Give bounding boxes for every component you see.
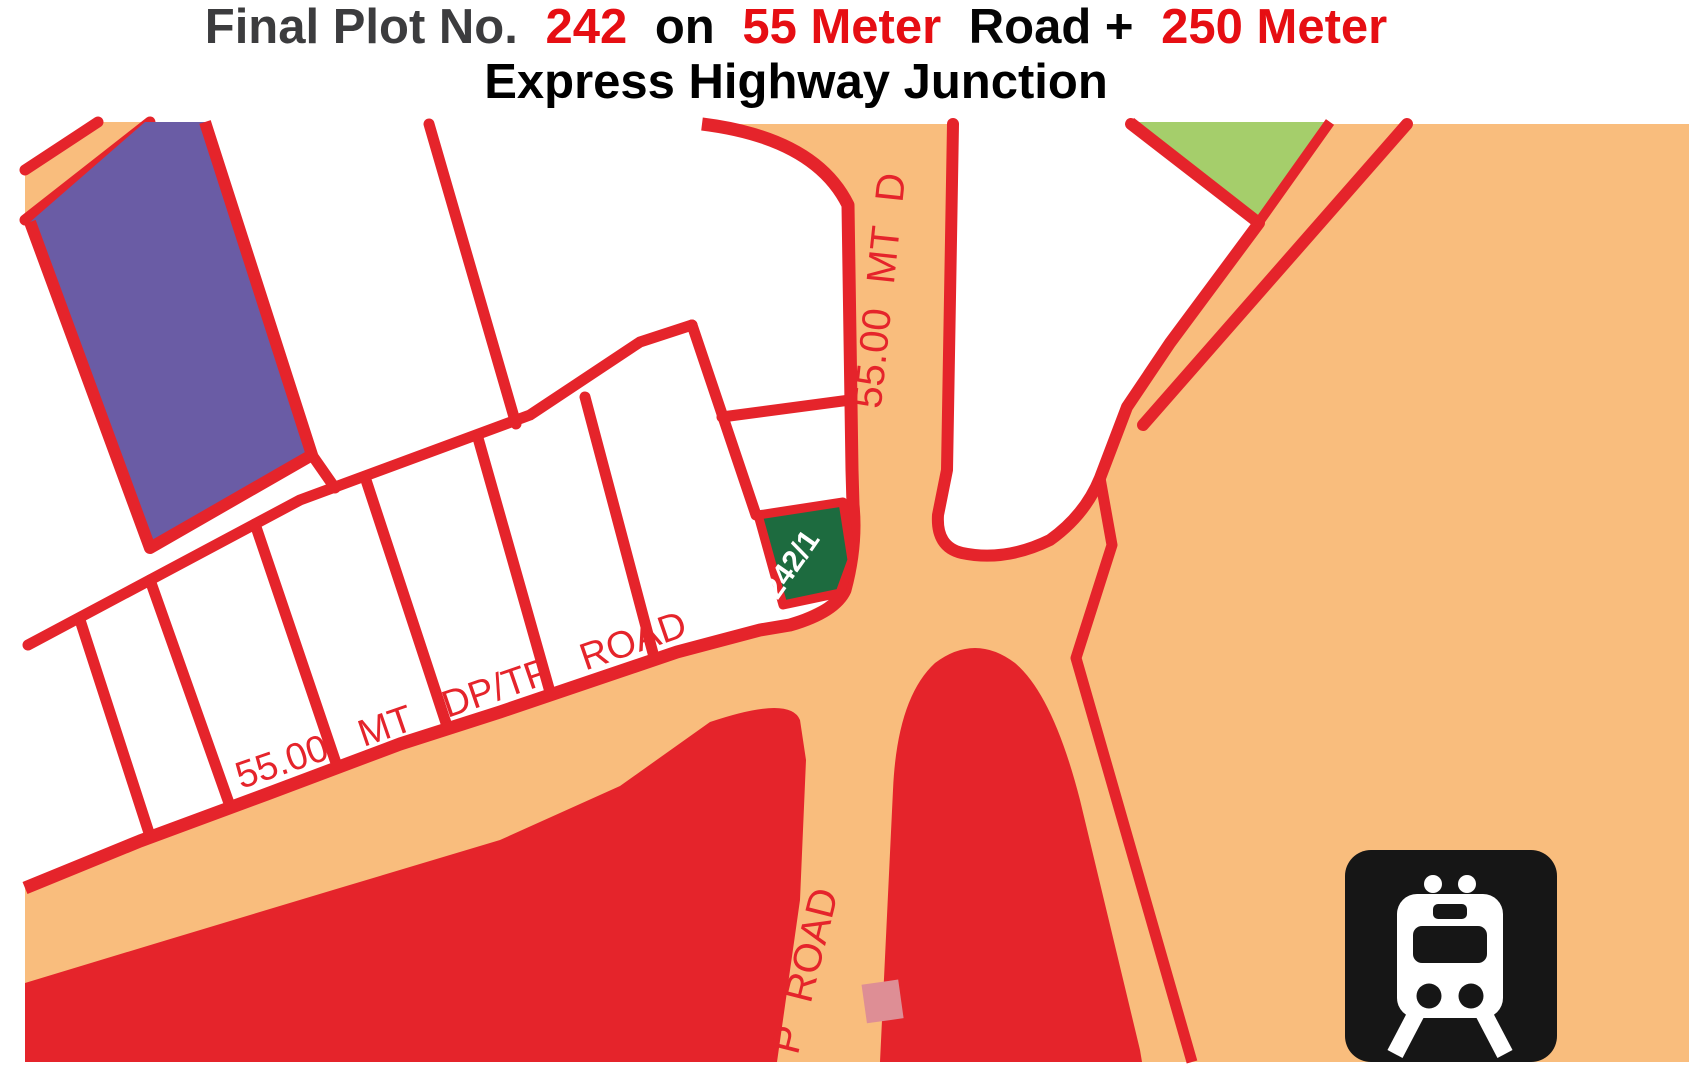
title-line-2: Express Highway Junction bbox=[0, 55, 1592, 110]
train-light-left bbox=[1417, 984, 1442, 1009]
plot-map-screenshot: Final Plot No. 242 on 55 Meter Road + 25… bbox=[0, 0, 1697, 1080]
train-pantograph-dot-right bbox=[1458, 875, 1476, 893]
title-road-width: 55 Meter bbox=[742, 0, 941, 55]
title-text-on: on bbox=[655, 0, 715, 55]
train-station-icon bbox=[1345, 850, 1557, 1062]
town-planning-map: 242/1 55.00 MT D 55.00 MT DP/TP ROAD P R… bbox=[0, 0, 1697, 1080]
train-pantograph-dot-left bbox=[1424, 875, 1442, 893]
title-line-1: Final Plot No. 242 on 55 Meter Road + 25… bbox=[0, 0, 1592, 55]
title-text-final-plot-no: Final Plot No. bbox=[205, 0, 518, 55]
title-plot-number: 242 bbox=[545, 0, 627, 55]
train-light-right bbox=[1459, 984, 1484, 1009]
title-text-road-plus: Road + bbox=[969, 0, 1134, 55]
page-title: Final Plot No. 242 on 55 Meter Road + 25… bbox=[0, 0, 1592, 110]
train-windshield bbox=[1413, 926, 1487, 963]
title-highway-width: 250 Meter bbox=[1161, 0, 1387, 55]
train-front-sign bbox=[1433, 904, 1467, 919]
pink-parcel bbox=[862, 980, 904, 1024]
